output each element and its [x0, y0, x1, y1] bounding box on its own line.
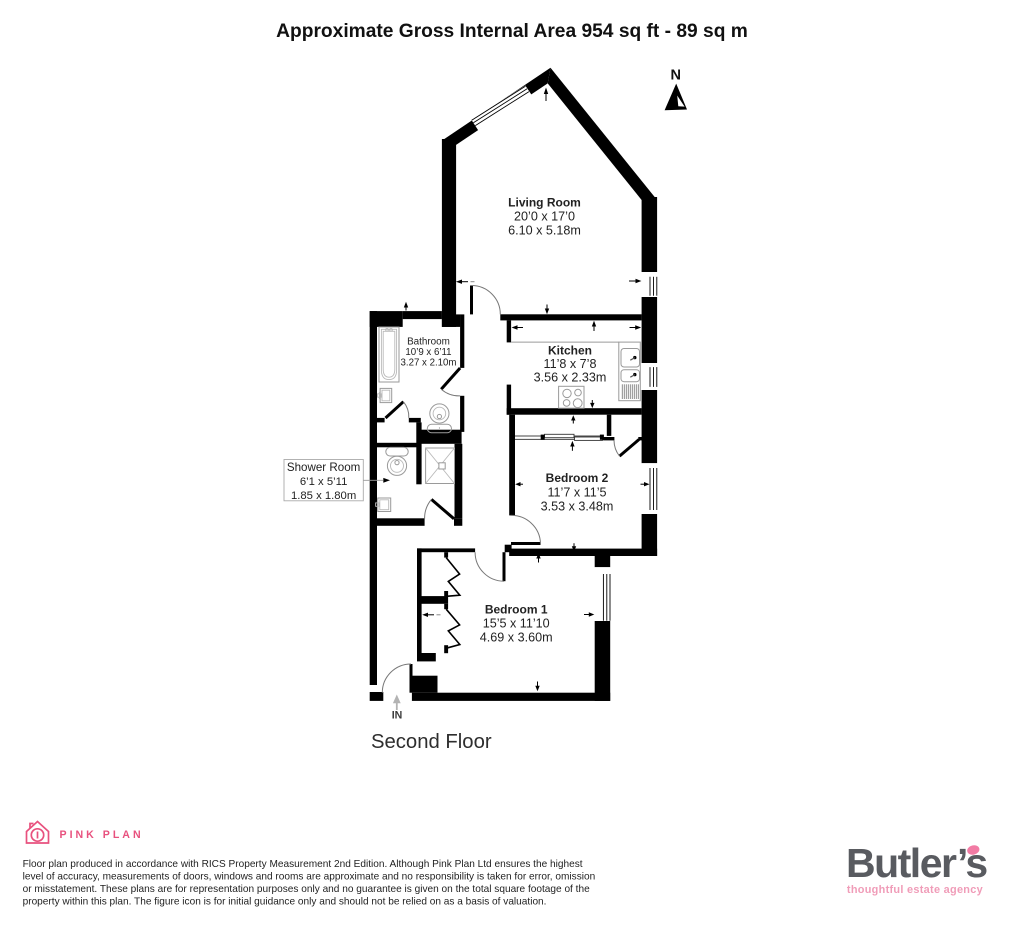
svg-text:Floor plan produced in accorda: Floor plan produced in accordance with R…: [23, 859, 583, 870]
svg-text:1.85 x 1.80m: 1.85 x 1.80m: [291, 490, 356, 502]
svg-text:15’5 x 11’10: 15’5 x 11’10: [483, 616, 550, 630]
svg-text:6.10 x 5.18m: 6.10 x 5.18m: [508, 224, 581, 238]
svg-text:Approximate Gross Internal Are: Approximate Gross Internal Area 954 sq f…: [276, 21, 748, 42]
svg-text:Bathroom: Bathroom: [407, 336, 450, 347]
svg-text:property within this plan. The: property within this plan. The figure ic…: [23, 896, 547, 907]
svg-text:IN: IN: [392, 709, 403, 721]
svg-text:level of accuracy, measurement: level of accuracy, measurements of doors…: [23, 871, 596, 882]
svg-text:4.69 x 3.60m: 4.69 x 3.60m: [480, 630, 553, 644]
svg-text:or misstatement. These plans a: or misstatement. These plans are for rep…: [23, 884, 590, 895]
svg-text:6’1 x 5’11: 6’1 x 5’11: [300, 476, 348, 488]
svg-text:PINK PLAN: PINK PLAN: [60, 829, 144, 841]
svg-text:Kitchen: Kitchen: [548, 344, 592, 358]
svg-text:Shower Room: Shower Room: [287, 461, 360, 474]
svg-text:10’9 x 6’11: 10’9 x 6’11: [405, 347, 451, 358]
svg-text:3.27 x 2.10m: 3.27 x 2.10m: [400, 357, 456, 368]
svg-text:thoughtful estate agency: thoughtful estate agency: [847, 884, 983, 896]
svg-text:Second Floor: Second Floor: [371, 731, 492, 753]
svg-text:3.56 x 2.33m: 3.56 x 2.33m: [534, 370, 607, 384]
svg-text:Butler’s: Butler’s: [846, 840, 987, 886]
svg-text:3.53 x 3.48m: 3.53 x 3.48m: [541, 499, 614, 513]
svg-text:Bedroom 1: Bedroom 1: [485, 602, 548, 616]
svg-text:20’0 x 17’0: 20’0 x 17’0: [514, 210, 575, 224]
svg-text:N: N: [671, 68, 681, 84]
svg-text:Bedroom 2: Bedroom 2: [546, 471, 609, 485]
svg-text:11’7 x 11’5: 11’7 x 11’5: [547, 485, 606, 499]
svg-text:Living Room: Living Room: [508, 196, 581, 210]
svg-text:11’8 x 7’8: 11’8 x 7’8: [544, 357, 597, 371]
